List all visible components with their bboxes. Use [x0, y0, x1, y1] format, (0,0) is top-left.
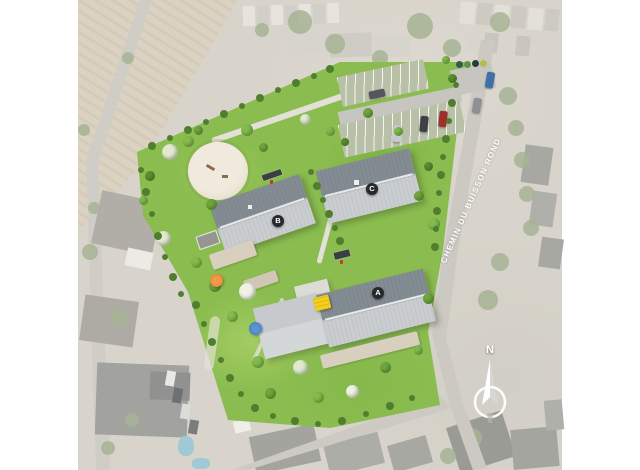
hdg [208, 338, 216, 346]
tree [313, 392, 324, 403]
building-marker-c-label: C [369, 185, 374, 193]
tree [423, 293, 434, 304]
hdg [315, 421, 321, 427]
north-compass: N [467, 344, 513, 424]
hdg [218, 357, 224, 363]
hdg [184, 126, 192, 134]
hdg [442, 135, 450, 143]
hdg [440, 154, 446, 160]
parasol-orange [210, 274, 223, 287]
hdg [270, 413, 276, 419]
tree [191, 257, 202, 268]
tree [252, 356, 264, 368]
hdg [453, 82, 459, 88]
tree [162, 144, 178, 160]
hdg [308, 169, 314, 175]
tree [341, 138, 349, 146]
hdg [436, 190, 442, 196]
hdg [203, 119, 209, 125]
hdg [192, 301, 200, 309]
tree [414, 346, 423, 355]
hdg [326, 65, 334, 73]
tree [326, 127, 335, 136]
tree [183, 136, 194, 147]
hdg [169, 273, 177, 281]
tree [346, 385, 359, 398]
tree [239, 283, 256, 300]
tree [145, 171, 155, 181]
hdg [291, 417, 299, 425]
hdg [386, 402, 394, 410]
tree [227, 311, 238, 322]
hdg [292, 79, 300, 87]
hdg [325, 210, 333, 218]
hdg [338, 417, 346, 425]
tree [424, 162, 433, 171]
hdg [201, 321, 207, 327]
site-plan-canvas: CHEMIN DU BUISSON ROND A B C N [0, 0, 640, 470]
hdg [433, 226, 439, 232]
hdg [409, 395, 415, 401]
site-sign-south-post [340, 260, 343, 264]
hdg [433, 207, 441, 215]
hdg [226, 374, 234, 382]
hdg [138, 167, 144, 173]
building-marker-c[interactable]: C [366, 183, 378, 195]
tree [194, 126, 203, 135]
hdg [149, 211, 155, 217]
tree [380, 362, 391, 373]
site-vegetation [0, 0, 640, 470]
hdg [437, 171, 445, 179]
building-marker-b[interactable]: B [272, 215, 284, 227]
hdg [320, 197, 326, 203]
hdg [336, 237, 344, 245]
site-sign-north-post [270, 180, 273, 184]
hdg [275, 87, 281, 93]
hdg [251, 404, 259, 412]
hdg [311, 73, 317, 79]
north-arrow-icon [467, 357, 513, 423]
hdg [363, 411, 369, 417]
tree [241, 124, 253, 136]
hdg [313, 182, 321, 190]
tree [265, 388, 276, 399]
tree [363, 108, 373, 118]
hdg [256, 94, 264, 102]
hdg [154, 232, 162, 240]
hdg [332, 225, 338, 231]
tree [206, 199, 217, 210]
north-label: N [467, 344, 513, 356]
hdg [148, 142, 156, 150]
building-marker-a-label: A [375, 289, 380, 297]
hdg [446, 118, 452, 124]
hdg [238, 391, 244, 397]
tree [139, 196, 148, 205]
parasol-blue [249, 322, 262, 335]
tree [259, 143, 268, 152]
hdg [431, 243, 439, 251]
tree [293, 360, 308, 375]
tree [442, 56, 450, 64]
tree [300, 114, 311, 125]
tree [394, 127, 403, 136]
hdg [448, 99, 456, 107]
hdg [162, 254, 168, 260]
hdg [239, 103, 245, 109]
hdg [142, 188, 150, 196]
tree [414, 191, 424, 201]
hdg [167, 135, 173, 141]
hdg [178, 291, 184, 297]
hdg [220, 110, 228, 118]
building-marker-b-label: B [275, 217, 280, 225]
building-marker-a[interactable]: A [372, 287, 384, 299]
